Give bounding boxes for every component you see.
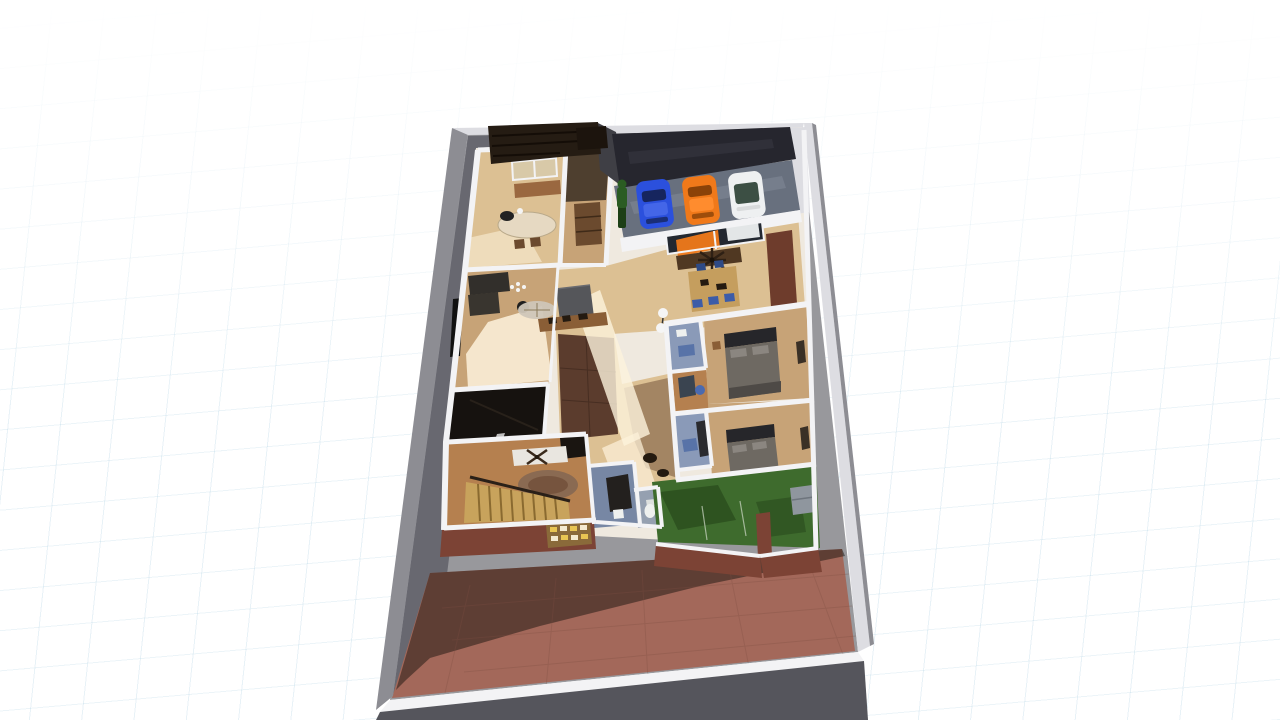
deco-tile: [581, 534, 588, 539]
deco-tile: [551, 536, 558, 541]
bath2-mat: [682, 438, 698, 452]
chandelier-bulb: [510, 285, 514, 289]
blue-car: [635, 178, 675, 230]
hall-chair: [643, 453, 657, 463]
dining-chair: [692, 299, 703, 308]
kitchen-light: [517, 208, 523, 214]
suite1-desk: [678, 375, 696, 398]
kitchen-stool: [500, 211, 514, 221]
person-body: [617, 187, 627, 208]
person-head: [618, 180, 627, 189]
console-item: [562, 315, 571, 322]
kitchen: [464, 148, 566, 270]
dining-chair: [724, 293, 735, 302]
bath1-mat: [678, 344, 695, 357]
nightstand: [712, 341, 721, 350]
chandelier-bulb: [522, 285, 526, 289]
deco-tile: [550, 527, 557, 532]
table-item: [716, 283, 727, 290]
media-room: [448, 384, 548, 442]
hall-chair: [657, 469, 669, 477]
dining-chair: [696, 263, 706, 271]
standing-person: [617, 180, 627, 229]
kitchen-chair: [514, 239, 525, 249]
deco-tile: [560, 526, 567, 531]
entry-shelf: [574, 202, 602, 246]
table-item: [700, 279, 709, 286]
3d-viewport[interactable]: [0, 0, 1280, 720]
white-car: [727, 170, 766, 220]
dining-chair: [708, 296, 719, 305]
fan-hub: [710, 258, 715, 263]
bath-door-panel: [606, 474, 632, 512]
orange-car: [681, 174, 721, 226]
toilet: [645, 504, 656, 518]
dining-chair: [714, 260, 724, 268]
bath1-sink: [676, 329, 687, 337]
deco-tile: [561, 535, 568, 540]
deco-tile: [580, 525, 587, 530]
console-item: [578, 313, 588, 320]
floorplan-render: [0, 0, 1280, 720]
chandelier-bulb: [516, 282, 520, 286]
person-legs: [618, 206, 626, 228]
family-room: [444, 434, 594, 530]
chimney-block: [576, 126, 608, 150]
suite1-chair: [695, 385, 705, 395]
brick-wall-stub: [756, 512, 772, 558]
bath-fixture: [613, 509, 624, 519]
deco-tile: [570, 526, 577, 531]
white-car-glass: [734, 182, 760, 205]
deco-tile: [571, 535, 578, 540]
chandelier-bulb: [516, 288, 520, 292]
kitchen-chair: [530, 237, 541, 247]
floor-lamp: [658, 308, 668, 318]
living-sofa: [468, 272, 510, 295]
family-fan-hub: [535, 455, 539, 459]
living-sofa: [468, 292, 500, 316]
